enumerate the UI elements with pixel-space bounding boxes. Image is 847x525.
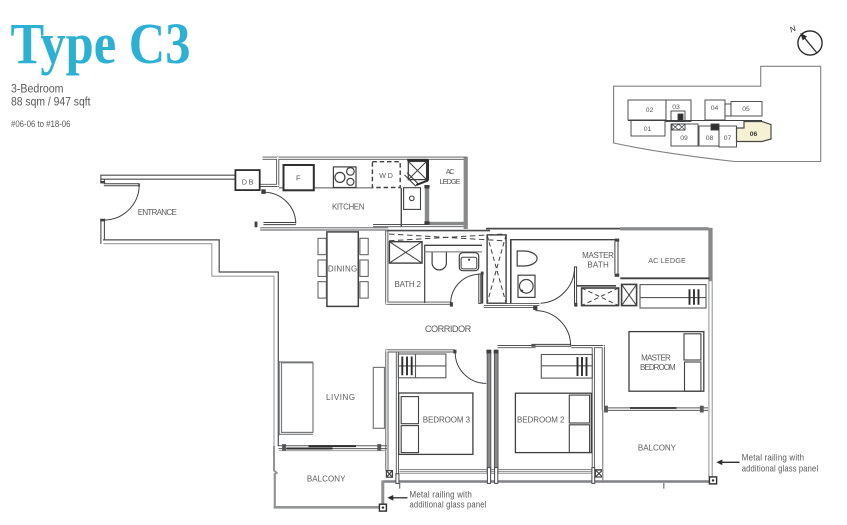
svg-text:WD: WD (379, 171, 394, 180)
svg-text:AC: AC (446, 167, 456, 176)
svg-text:AC LEDGE: AC LEDGE (648, 256, 686, 265)
svg-text:BALCONY: BALCONY (307, 474, 347, 483)
svg-text:08: 08 (706, 135, 714, 142)
svg-text:BALCONY: BALCONY (638, 444, 677, 453)
svg-text:LEDGE: LEDGE (439, 177, 461, 186)
svg-text:LIVING: LIVING (326, 393, 356, 402)
svg-text:KITCHEN: KITCHEN (332, 202, 365, 211)
svg-text:Metal railing with: Metal railing with (410, 490, 473, 500)
svg-text:BATH: BATH (587, 260, 609, 269)
svg-text:BATH 2: BATH 2 (395, 280, 422, 289)
svg-text:BEDROOM: BEDROOM (640, 363, 677, 372)
svg-text:03: 03 (672, 104, 680, 111)
svg-text:07: 07 (724, 135, 732, 142)
svg-text:ENTRANCE: ENTRANCE (138, 208, 178, 217)
svg-text:BEDROOM 2: BEDROOM 2 (517, 416, 565, 425)
svg-text:DB: DB (242, 177, 255, 186)
svg-text:DINING: DINING (328, 264, 358, 273)
svg-text:N: N (788, 24, 797, 35)
svg-text:additional glass panel: additional glass panel (742, 463, 819, 473)
svg-text:88 sqm / 947 sqft: 88 sqm / 947 sqft (11, 97, 91, 109)
svg-text:additional glass panel: additional glass panel (410, 499, 487, 509)
svg-text:3-Bedroom: 3-Bedroom (11, 84, 64, 96)
svg-text:04: 04 (711, 105, 719, 112)
svg-text:09: 09 (680, 135, 688, 142)
svg-text:Metal railing with: Metal railing with (742, 453, 805, 463)
svg-text:#06-06 to #18-06: #06-06 to #18-06 (11, 119, 71, 129)
svg-text:Type C3: Type C3 (11, 11, 191, 76)
svg-text:01: 01 (644, 126, 652, 133)
svg-text:MASTER: MASTER (582, 251, 615, 260)
svg-text:02: 02 (646, 107, 654, 114)
svg-text:BEDROOM 3: BEDROOM 3 (423, 416, 471, 425)
svg-text:CORRIDOR: CORRIDOR (425, 324, 472, 334)
svg-text:MASTER: MASTER (641, 353, 672, 362)
svg-text:F: F (296, 174, 301, 183)
svg-text:06: 06 (750, 131, 758, 138)
svg-text:05: 05 (742, 106, 750, 113)
